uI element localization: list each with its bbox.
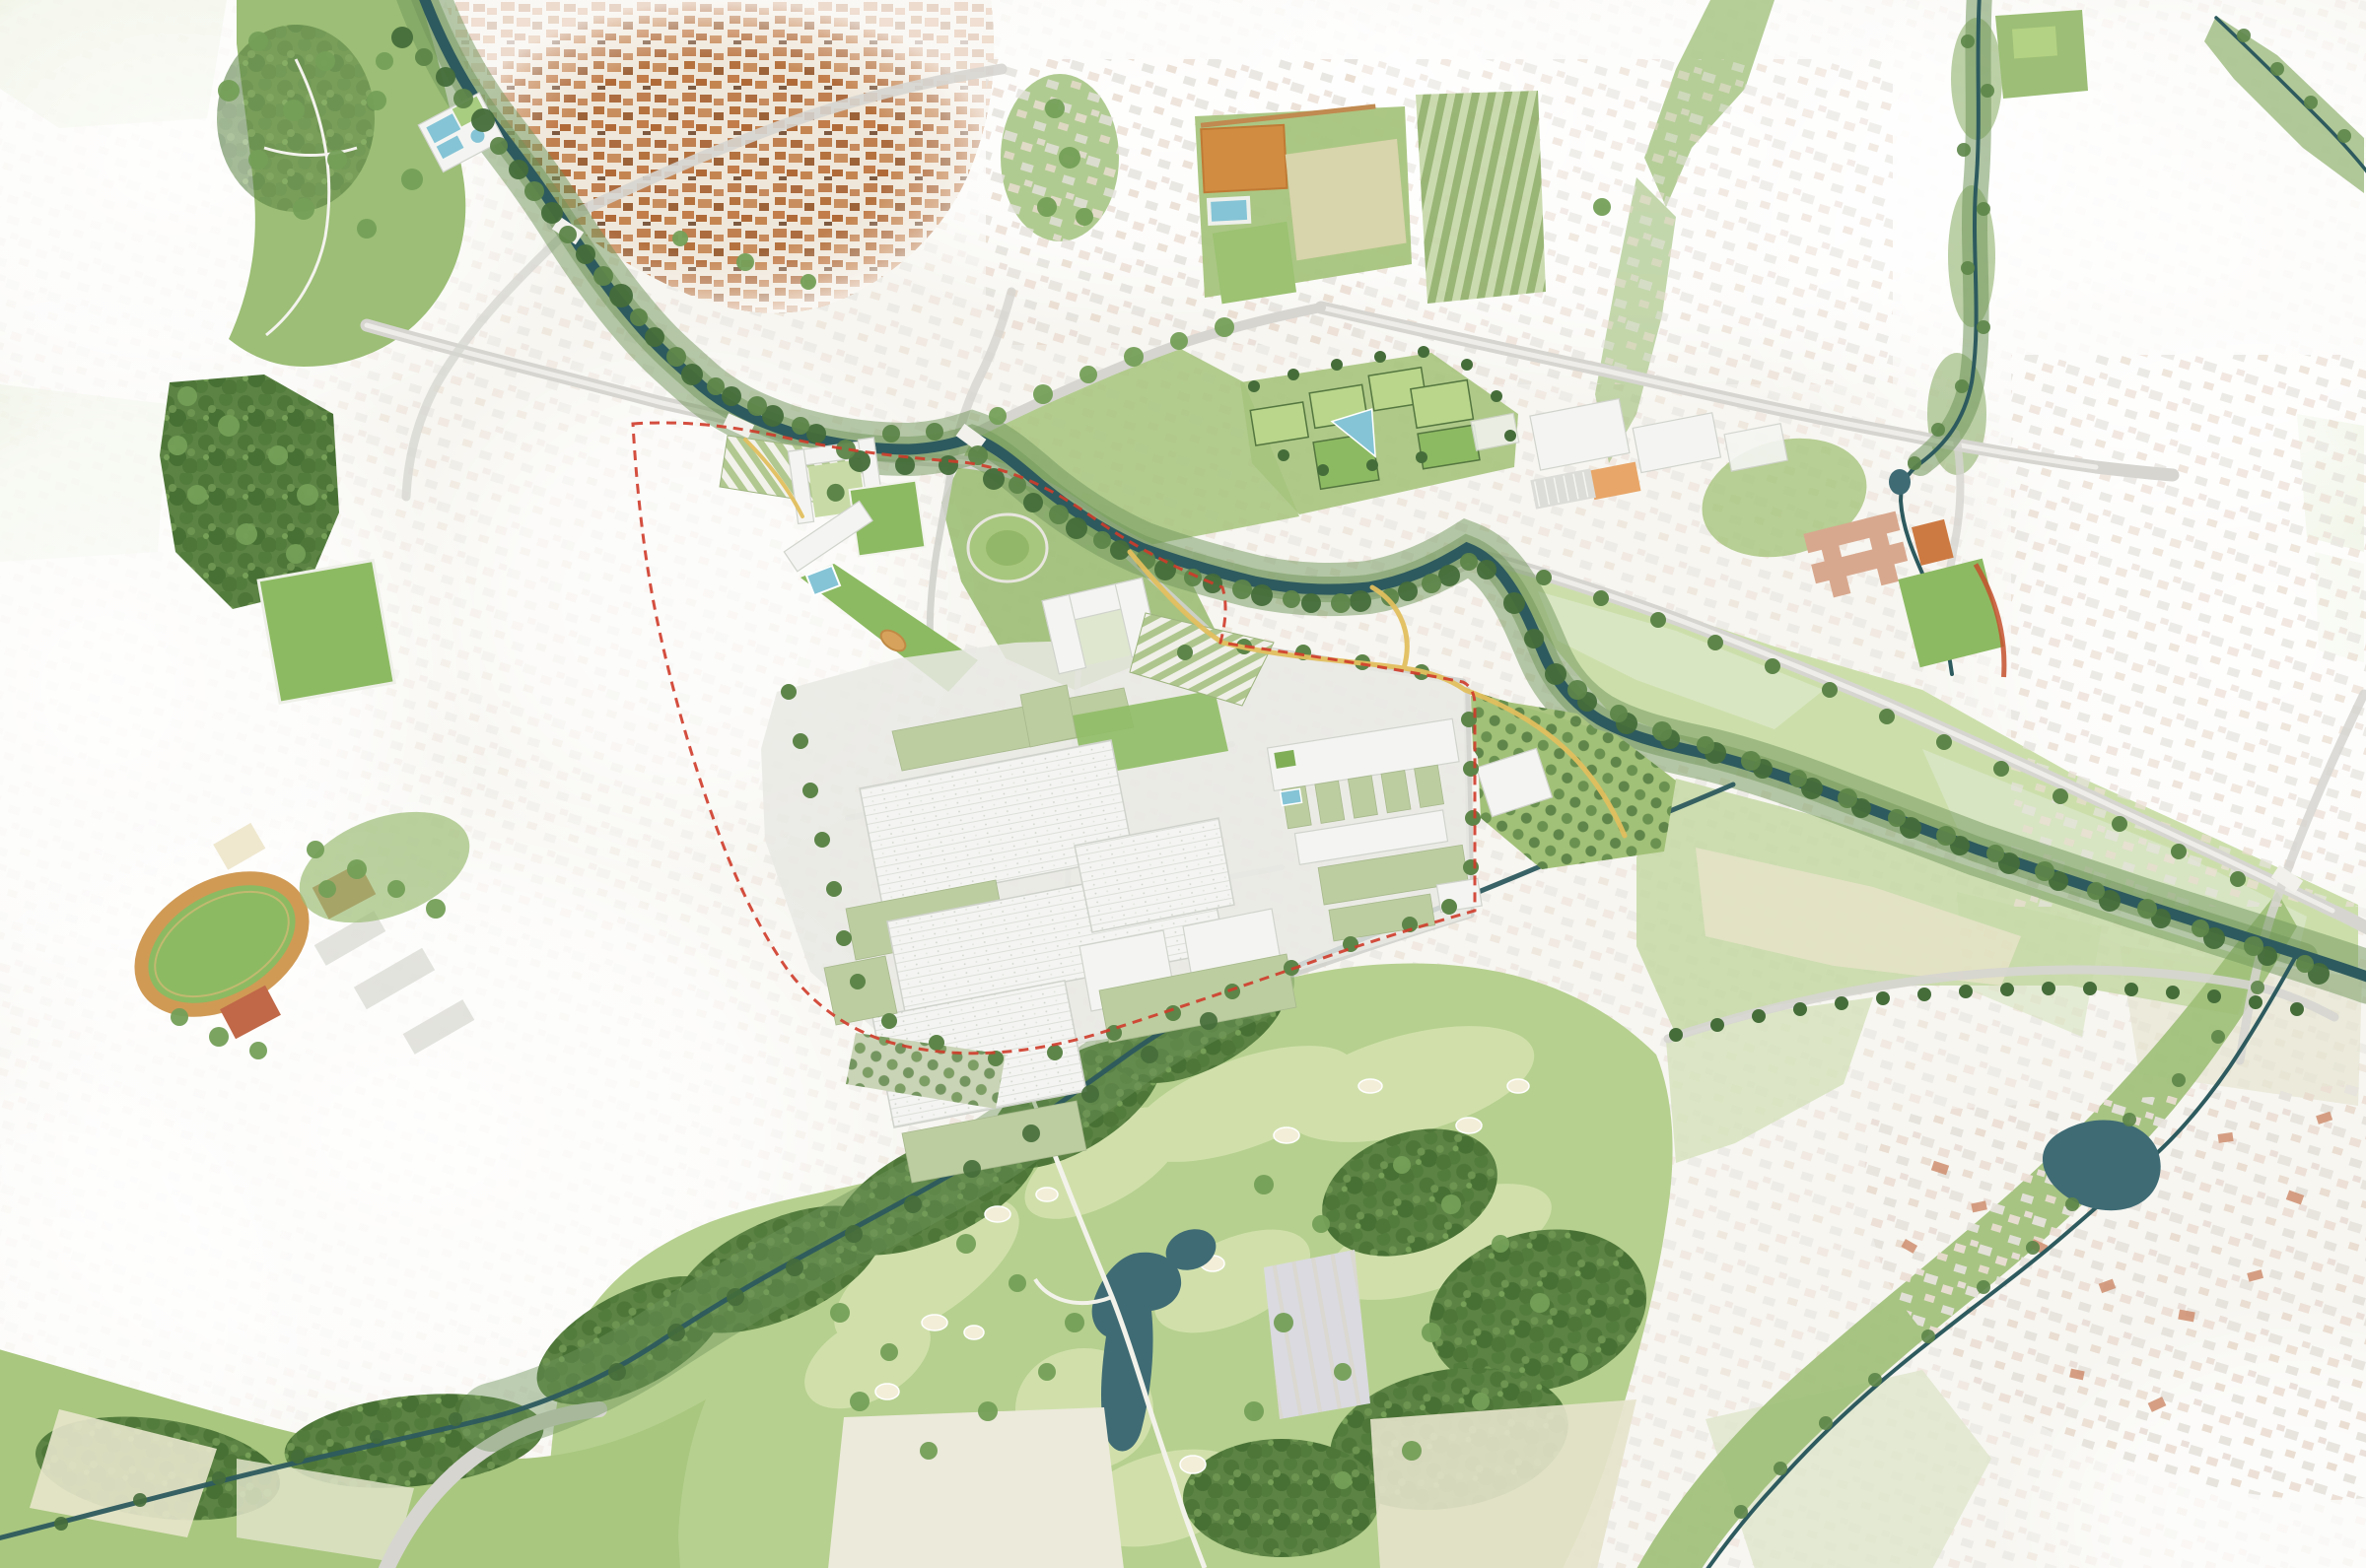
field-bottom-right: [1370, 1399, 1636, 1568]
courtyard-pool: [1281, 788, 1302, 805]
courtyard-lawn: [1274, 750, 1295, 769]
masterplan-map: [0, 0, 2366, 1568]
field-bottom-center: [828, 1407, 1124, 1568]
vineyard-rows: [1416, 91, 1546, 304]
sports-pitch-west: [258, 561, 394, 704]
outdoor-pool-north: [1211, 200, 1247, 222]
small-pond-ne: [1889, 469, 1911, 495]
clay-court: [1201, 125, 1287, 192]
map-canvas: [0, 0, 2366, 1568]
